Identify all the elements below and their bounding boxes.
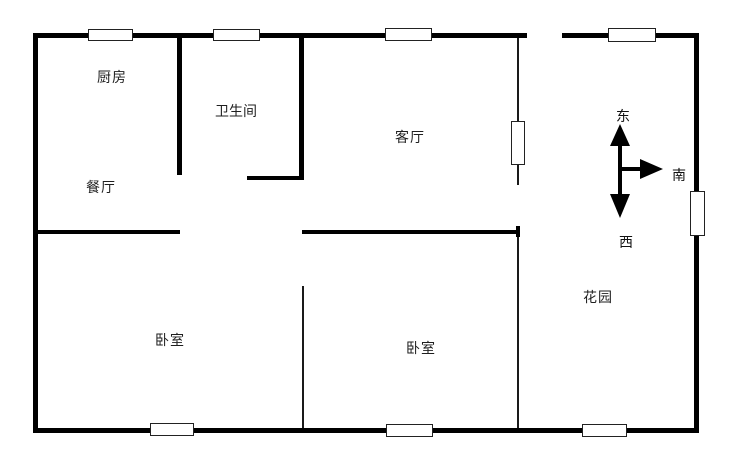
wall-garden-divider-mid <box>517 165 519 185</box>
room-label-bedroom-left: 卧室 <box>155 330 185 350</box>
window-garden-right <box>690 191 705 236</box>
wall-bathroom-bottom <box>247 176 304 180</box>
compass-label-east: 东 <box>616 106 630 126</box>
wall-garden-divider-junction <box>516 226 520 237</box>
window-living-room <box>385 28 432 41</box>
room-label-living-room: 客厅 <box>395 127 425 147</box>
wall-mid-right <box>302 230 518 234</box>
wall-garden-divider-top <box>517 38 519 121</box>
floor-plan: 厨房 卫生间 客厅 餐厅 卧室 卧室 花园 东 南 西 <box>0 0 729 465</box>
wall-garden-divider-bottom <box>517 237 519 428</box>
window-bedroom-left <box>150 423 194 436</box>
room-label-bedroom-right: 卧室 <box>406 338 436 358</box>
compass-label-south: 南 <box>672 165 686 185</box>
wall-mid-left <box>33 230 180 234</box>
window-garden-bottom <box>582 424 627 437</box>
wall-bathroom-right <box>299 33 304 180</box>
room-label-garden: 花园 <box>583 287 613 307</box>
compass-label-west: 西 <box>619 232 633 252</box>
wall-bedroom-divider <box>302 286 304 428</box>
room-label-bathroom: 卫生间 <box>215 101 257 121</box>
window-living-garden <box>511 121 525 165</box>
window-kitchen <box>88 29 133 41</box>
window-bedroom-right <box>386 424 433 437</box>
window-bathroom <box>213 29 260 41</box>
wall-bathroom-left <box>177 33 182 175</box>
room-label-kitchen: 厨房 <box>97 67 127 87</box>
compass-icon <box>595 108 675 233</box>
window-garden-top <box>608 28 656 42</box>
room-label-dining-room: 餐厅 <box>86 177 116 197</box>
